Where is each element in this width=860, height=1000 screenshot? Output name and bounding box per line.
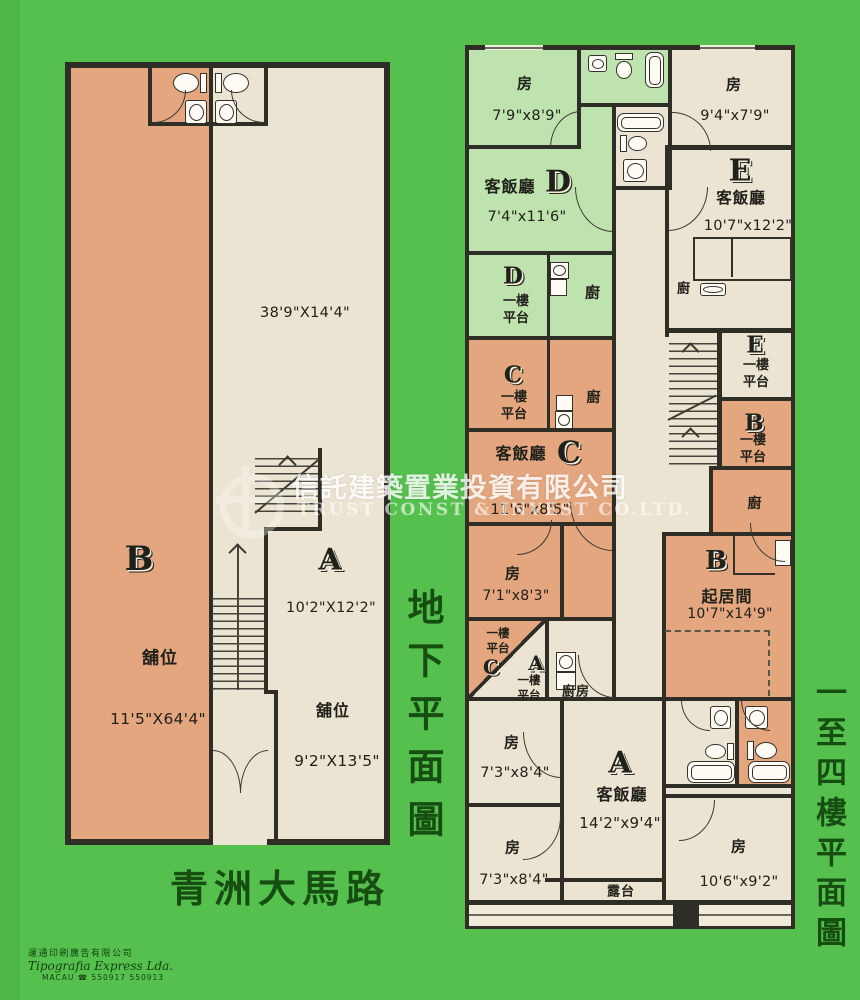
stove-icon (550, 279, 567, 296)
unit-b-living-label: 起居間 (701, 583, 752, 607)
left-edge-shade (0, 0, 20, 1000)
wall (469, 251, 612, 255)
unit-e-kitchen-label: 廚 (677, 278, 691, 297)
unit-b-terrace-label: 一樓平台 (736, 433, 770, 467)
triangle-a-terrace-label: 一樓平台 (515, 673, 543, 703)
entrance-door-arc (240, 750, 268, 793)
hall-dim: 38'9"X14'4" (260, 305, 350, 321)
unit-c-living-dim: 11'6"x8'5" (490, 502, 569, 518)
unit-a-letter: A (608, 746, 631, 781)
unit-d-living-dim: 7'4"x11'6" (487, 209, 566, 225)
wall (791, 45, 795, 929)
unit-e-bedroom-label: 房 (726, 74, 742, 95)
unit-d-terrace-letter: D (503, 263, 523, 290)
wall (560, 525, 564, 618)
wall (662, 532, 666, 900)
unit-a-upper-dim: 10'2"X12'2" (286, 600, 376, 616)
printer-credit-line3: MACAU ☎ 550917 550913 (28, 973, 173, 982)
bathtub-icon (687, 761, 735, 783)
unit-b-living-dim: 10'7"x14'9" (687, 606, 773, 622)
bathtub-icon (748, 761, 790, 783)
unit-c-terrace-label: 一樓平台 (497, 390, 531, 424)
wall (384, 62, 390, 845)
wall (264, 62, 268, 126)
printer-credit: 運通印刷廣告有限公司 Tipografia Express Lda. MACAU… (28, 946, 173, 982)
window (469, 905, 791, 926)
wall (65, 62, 390, 68)
floor-plan-poster: 38'9"X14'4" B A 10'2"X12'2" 舖位 11'5"X64'… (0, 0, 860, 1000)
street-name: 青洲大馬路 (152, 858, 408, 913)
unit-e-terrace-label: 一樓平台 (739, 358, 773, 392)
unit-a-lower-dim: 9'2"X13'5" (294, 752, 380, 770)
sink-icon (710, 706, 731, 729)
toilet-icon (705, 743, 734, 760)
kitchen-counter (693, 237, 792, 281)
bathtub-icon (645, 52, 664, 88)
wall (662, 784, 791, 788)
unit-c-letter: C (557, 436, 581, 471)
bathtub-icon (617, 113, 664, 132)
unit-a-balcony-label: 露台 (607, 881, 635, 900)
wall (545, 878, 662, 882)
unit-a-living-label: 客飯廳 (596, 781, 647, 805)
wall (209, 62, 213, 839)
unit-d-bedroom-label: 房 (517, 73, 533, 94)
unit-e-living-label: 客飯廳 (716, 186, 766, 208)
wall (465, 45, 469, 929)
stairs-centerline (237, 544, 239, 690)
kitchen-sink-icon (556, 395, 573, 411)
kitchen-sink-icon (550, 262, 569, 279)
unit-d-letter: D (545, 165, 571, 200)
wall (274, 693, 278, 839)
unit-e-letter: E (729, 154, 752, 189)
ground-floor-plan: 38'9"X14'4" B A 10'2"X12'2" 舖位 11'5"X64'… (65, 62, 390, 845)
stove-icon (555, 411, 573, 429)
unit-a-letter: A (318, 543, 341, 578)
up-arrow-icon (228, 543, 246, 561)
wall (545, 620, 549, 697)
unit-a-bedroom1-dim: 7'3"x8'4" (480, 765, 550, 781)
unit-a-bedroom3-label: 房 (731, 836, 747, 857)
entrance-opening (213, 839, 267, 845)
unit-a-shop-label: 舖位 (316, 697, 350, 721)
unit-a-bedroom1-label: 房 (504, 732, 520, 753)
unit-a-kitchen-label: 廚房 (562, 681, 590, 700)
wall (264, 527, 268, 693)
printer-credit-line1: 運通印刷廣告有限公司 (28, 946, 173, 959)
unit-d-bedroom-dim: 7'9"x8'9" (492, 108, 562, 124)
unit-d-terrace-label: 一樓平台 (499, 294, 533, 328)
wall (709, 466, 713, 535)
triangle-a-letter: A (528, 651, 544, 675)
wall (665, 145, 669, 337)
toilet-icon (620, 135, 647, 152)
extent-dashed-line (665, 630, 770, 696)
unit-b-letter: B (125, 539, 154, 579)
triangle-c-letter: C (483, 655, 499, 679)
wall (469, 336, 612, 340)
window (485, 45, 543, 50)
unit-a-bedroom2-dim: 7'3"x8'4" (479, 872, 549, 888)
toilet-icon (615, 53, 633, 79)
unit-e-terrace-letter: E (746, 332, 764, 359)
ground-plan-title: 地下平面圖 (396, 588, 450, 853)
counter-divider (731, 237, 733, 277)
kitchen-sink-icon (700, 283, 726, 296)
sink-icon (623, 159, 647, 182)
unit-c-bedroom-label: 房 (505, 563, 521, 584)
wall (662, 794, 791, 798)
wall (665, 328, 791, 333)
unit-e-living-dim: 10'7"x12'2" (704, 218, 793, 234)
entrance-door-arc (213, 750, 241, 793)
wall (615, 186, 668, 190)
printer-credit-line2: Tipografia Express Lda. (28, 959, 173, 973)
triangle-c-terrace-label: 一樓平台 (484, 626, 512, 656)
unit-a-bedroom2-label: 房 (505, 837, 521, 858)
upper-plan-title: 一至四樓平面圖 (806, 676, 851, 956)
unit-a-living-dim: 14'2"x9'4" (579, 814, 661, 832)
wall (469, 803, 564, 807)
wall (735, 700, 739, 784)
sink-icon (588, 55, 607, 72)
wall (148, 62, 152, 126)
wall (717, 397, 791, 401)
window (700, 45, 755, 50)
unit-b-letter: B (705, 546, 727, 576)
wall (65, 62, 71, 845)
unit-b-shop-label: 舖位 (142, 644, 178, 669)
unit-e-bedroom-dim: 9'4"x7'9" (700, 108, 770, 124)
toilet-icon (747, 741, 777, 760)
unit-b-dim: 11'5"X64'4" (110, 710, 206, 728)
wall (469, 428, 612, 432)
unit-d-living-label: 客飯廳 (484, 173, 535, 197)
unit-d-kitchen-label: 廚 (585, 282, 601, 303)
wall (560, 700, 564, 900)
unit-a-bedroom3-dim: 10'6"x9'2" (699, 874, 778, 890)
wall (148, 122, 268, 126)
unit-c-terrace-letter: C (504, 362, 522, 389)
upper-floors-plan: 房 7'9"x8'9" 客飯廳 D 7'4"x11'6" 廚 D 一樓平台 C … (465, 45, 795, 933)
unit-b-kitchen-label: 廚 (748, 493, 763, 513)
pillar (673, 901, 699, 927)
unit-c-living-label: 客飯廳 (495, 440, 546, 464)
wall (579, 103, 668, 107)
unit-c-kitchen-label: 廚 (587, 387, 602, 407)
sink-icon (185, 100, 207, 124)
kitchen-sink-icon (556, 652, 576, 672)
wall (264, 527, 322, 531)
wall (465, 926, 795, 929)
wall (469, 617, 612, 621)
unit-c-bedroom-dim: 7'1"x8'3" (482, 588, 549, 604)
